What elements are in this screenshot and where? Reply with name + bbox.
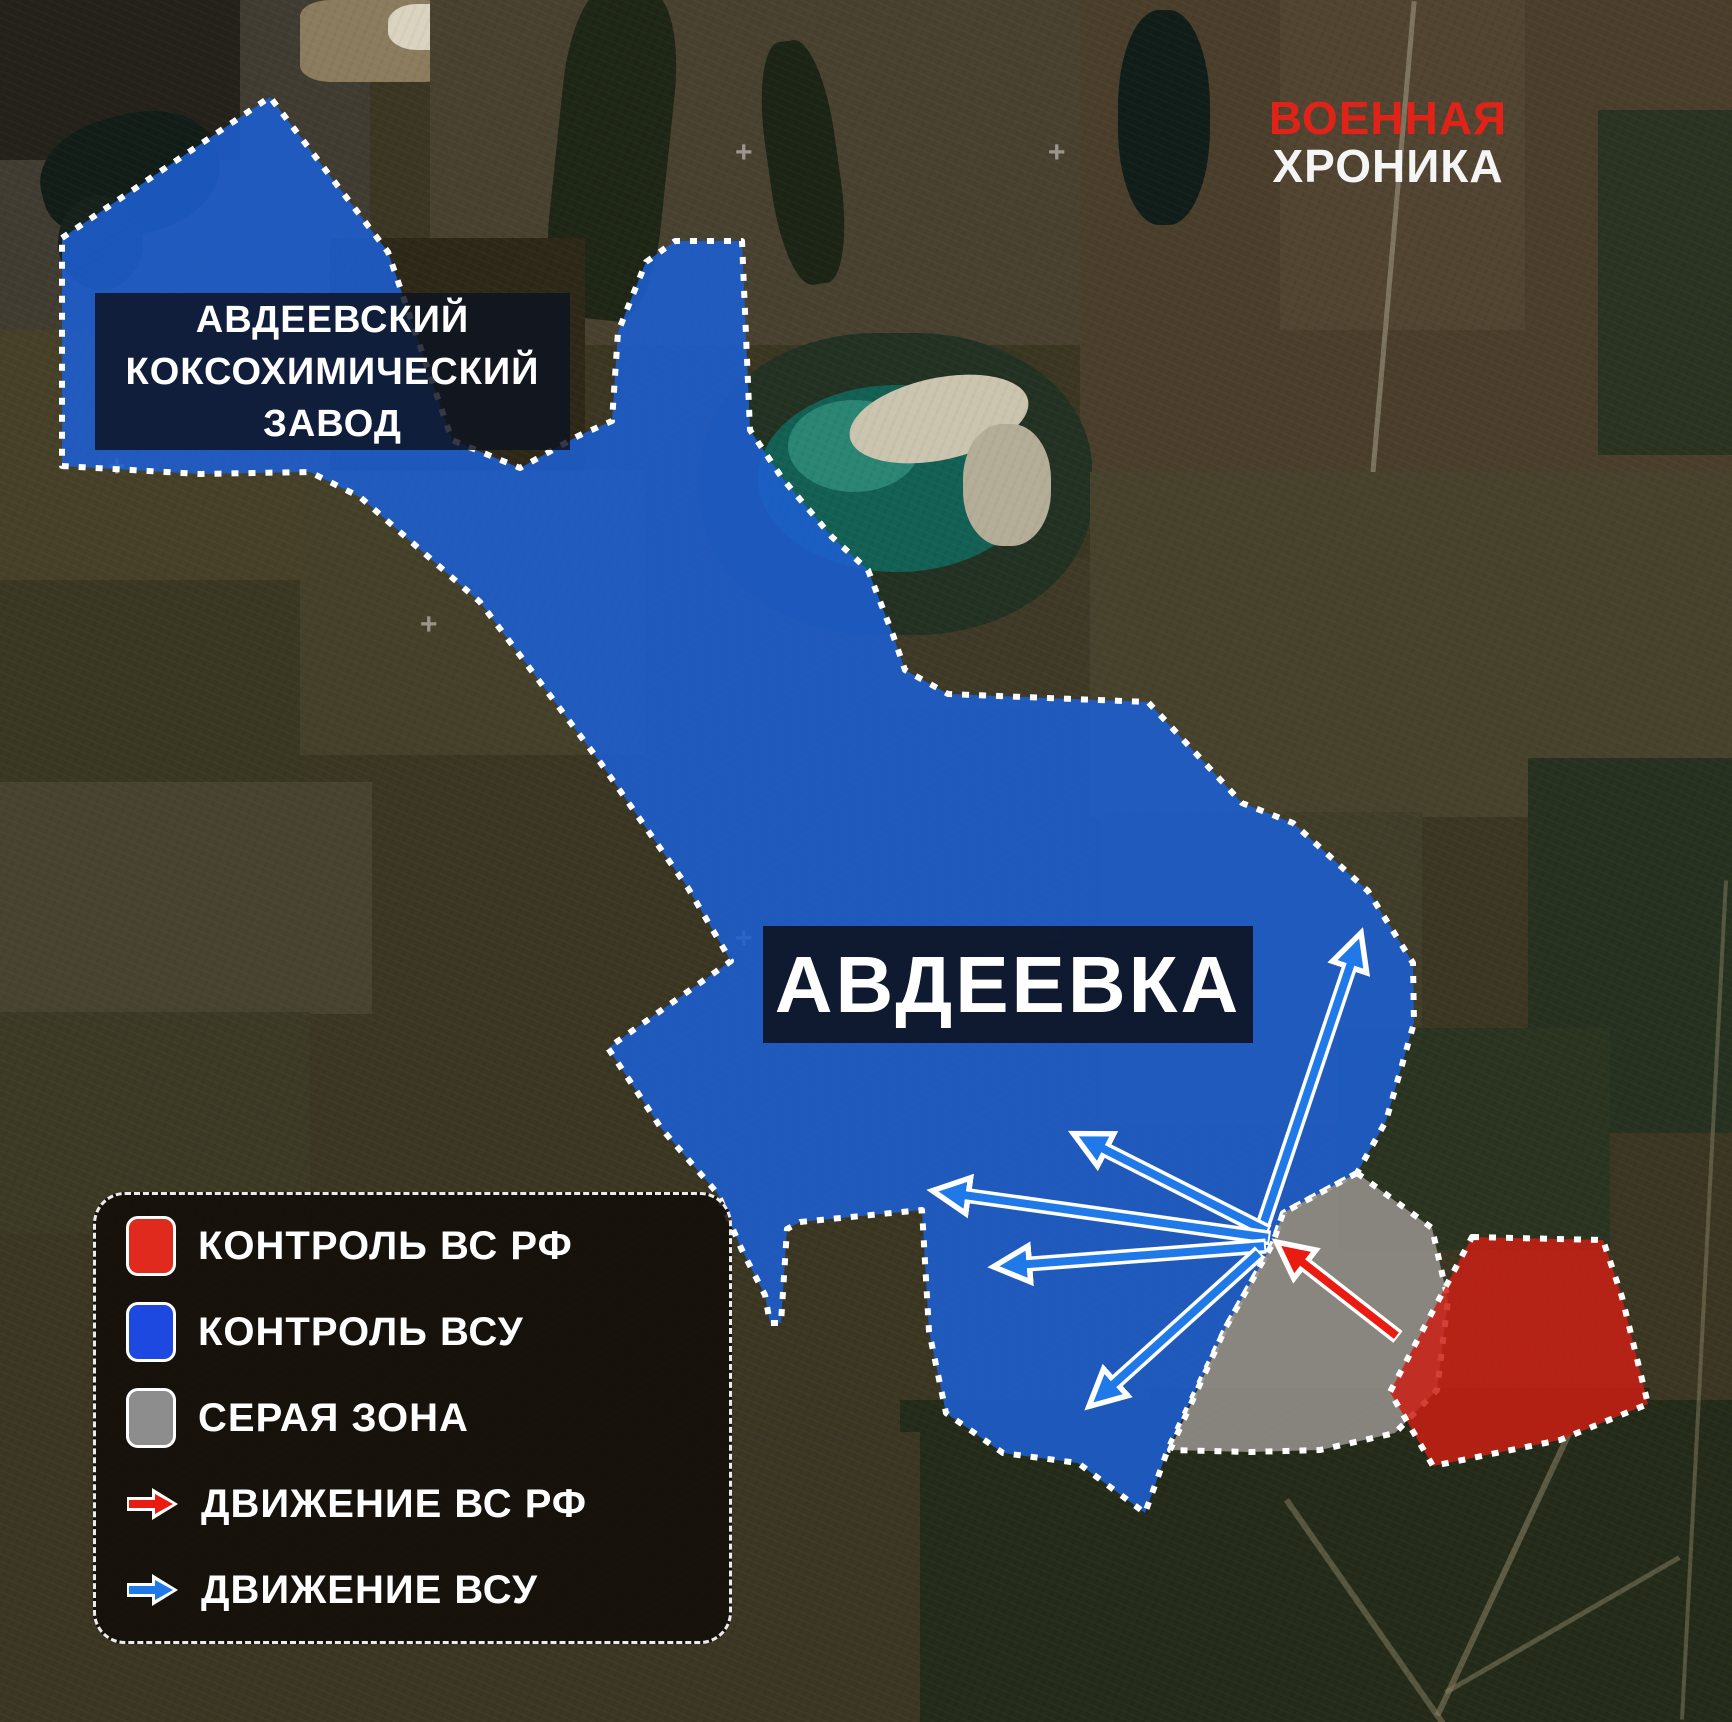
city-label: АВДЕЕВКА <box>763 926 1253 1043</box>
brand-logo: ВОЕННАЯ ХРОНИКА <box>1258 94 1518 190</box>
legend-label: КОНТРОЛЬ ВСУ <box>198 1310 524 1355</box>
blue-swatch-icon <box>126 1302 176 1362</box>
legend-label: ДВИЖЕНИЕ ВСУ <box>201 1568 538 1613</box>
legend-item-rf-control: КОНТРОЛЬ ВС РФ <box>126 1203 729 1289</box>
blue-arrow-icon <box>123 1572 179 1608</box>
plant-label: АВДЕЕВСКИЙ КОКСОХИМИЧЕСКИЙ ЗАВОД <box>95 293 570 450</box>
legend-item-vsu-control: КОНТРОЛЬ ВСУ <box>126 1289 729 1375</box>
plant-label-line: АВДЕЕВСКИЙ <box>95 294 570 346</box>
legend-label: ДВИЖЕНИЕ ВС РФ <box>201 1482 587 1527</box>
legend-panel: КОНТРОЛЬ ВС РФ КОНТРОЛЬ ВСУ СЕРАЯ ЗОНА Д… <box>93 1192 732 1644</box>
brand-line-1: ВОЕННАЯ <box>1258 94 1518 142</box>
legend-item-vsu-movement: ДВИЖЕНИЕ ВСУ <box>126 1547 729 1633</box>
legend-item-gray-zone: СЕРАЯ ЗОНА <box>126 1375 729 1461</box>
red-swatch-icon <box>126 1216 176 1276</box>
red-arrow-icon <box>123 1486 179 1522</box>
plant-label-line: ЗАВОД <box>95 398 570 450</box>
legend-label: КОНТРОЛЬ ВС РФ <box>198 1224 573 1269</box>
plant-label-line: КОКСОХИМИЧЕСКИЙ <box>95 346 570 398</box>
gray-swatch-icon <box>126 1388 176 1448</box>
legend-item-rf-movement: ДВИЖЕНИЕ ВС РФ <box>126 1461 729 1547</box>
brand-line-2: ХРОНИКА <box>1258 142 1518 190</box>
infographic-map: АВДЕЕВСКИЙ КОКСОХИМИЧЕСКИЙ ЗАВОД АВДЕЕВК… <box>0 0 1732 1722</box>
legend-label: СЕРАЯ ЗОНА <box>198 1396 469 1441</box>
